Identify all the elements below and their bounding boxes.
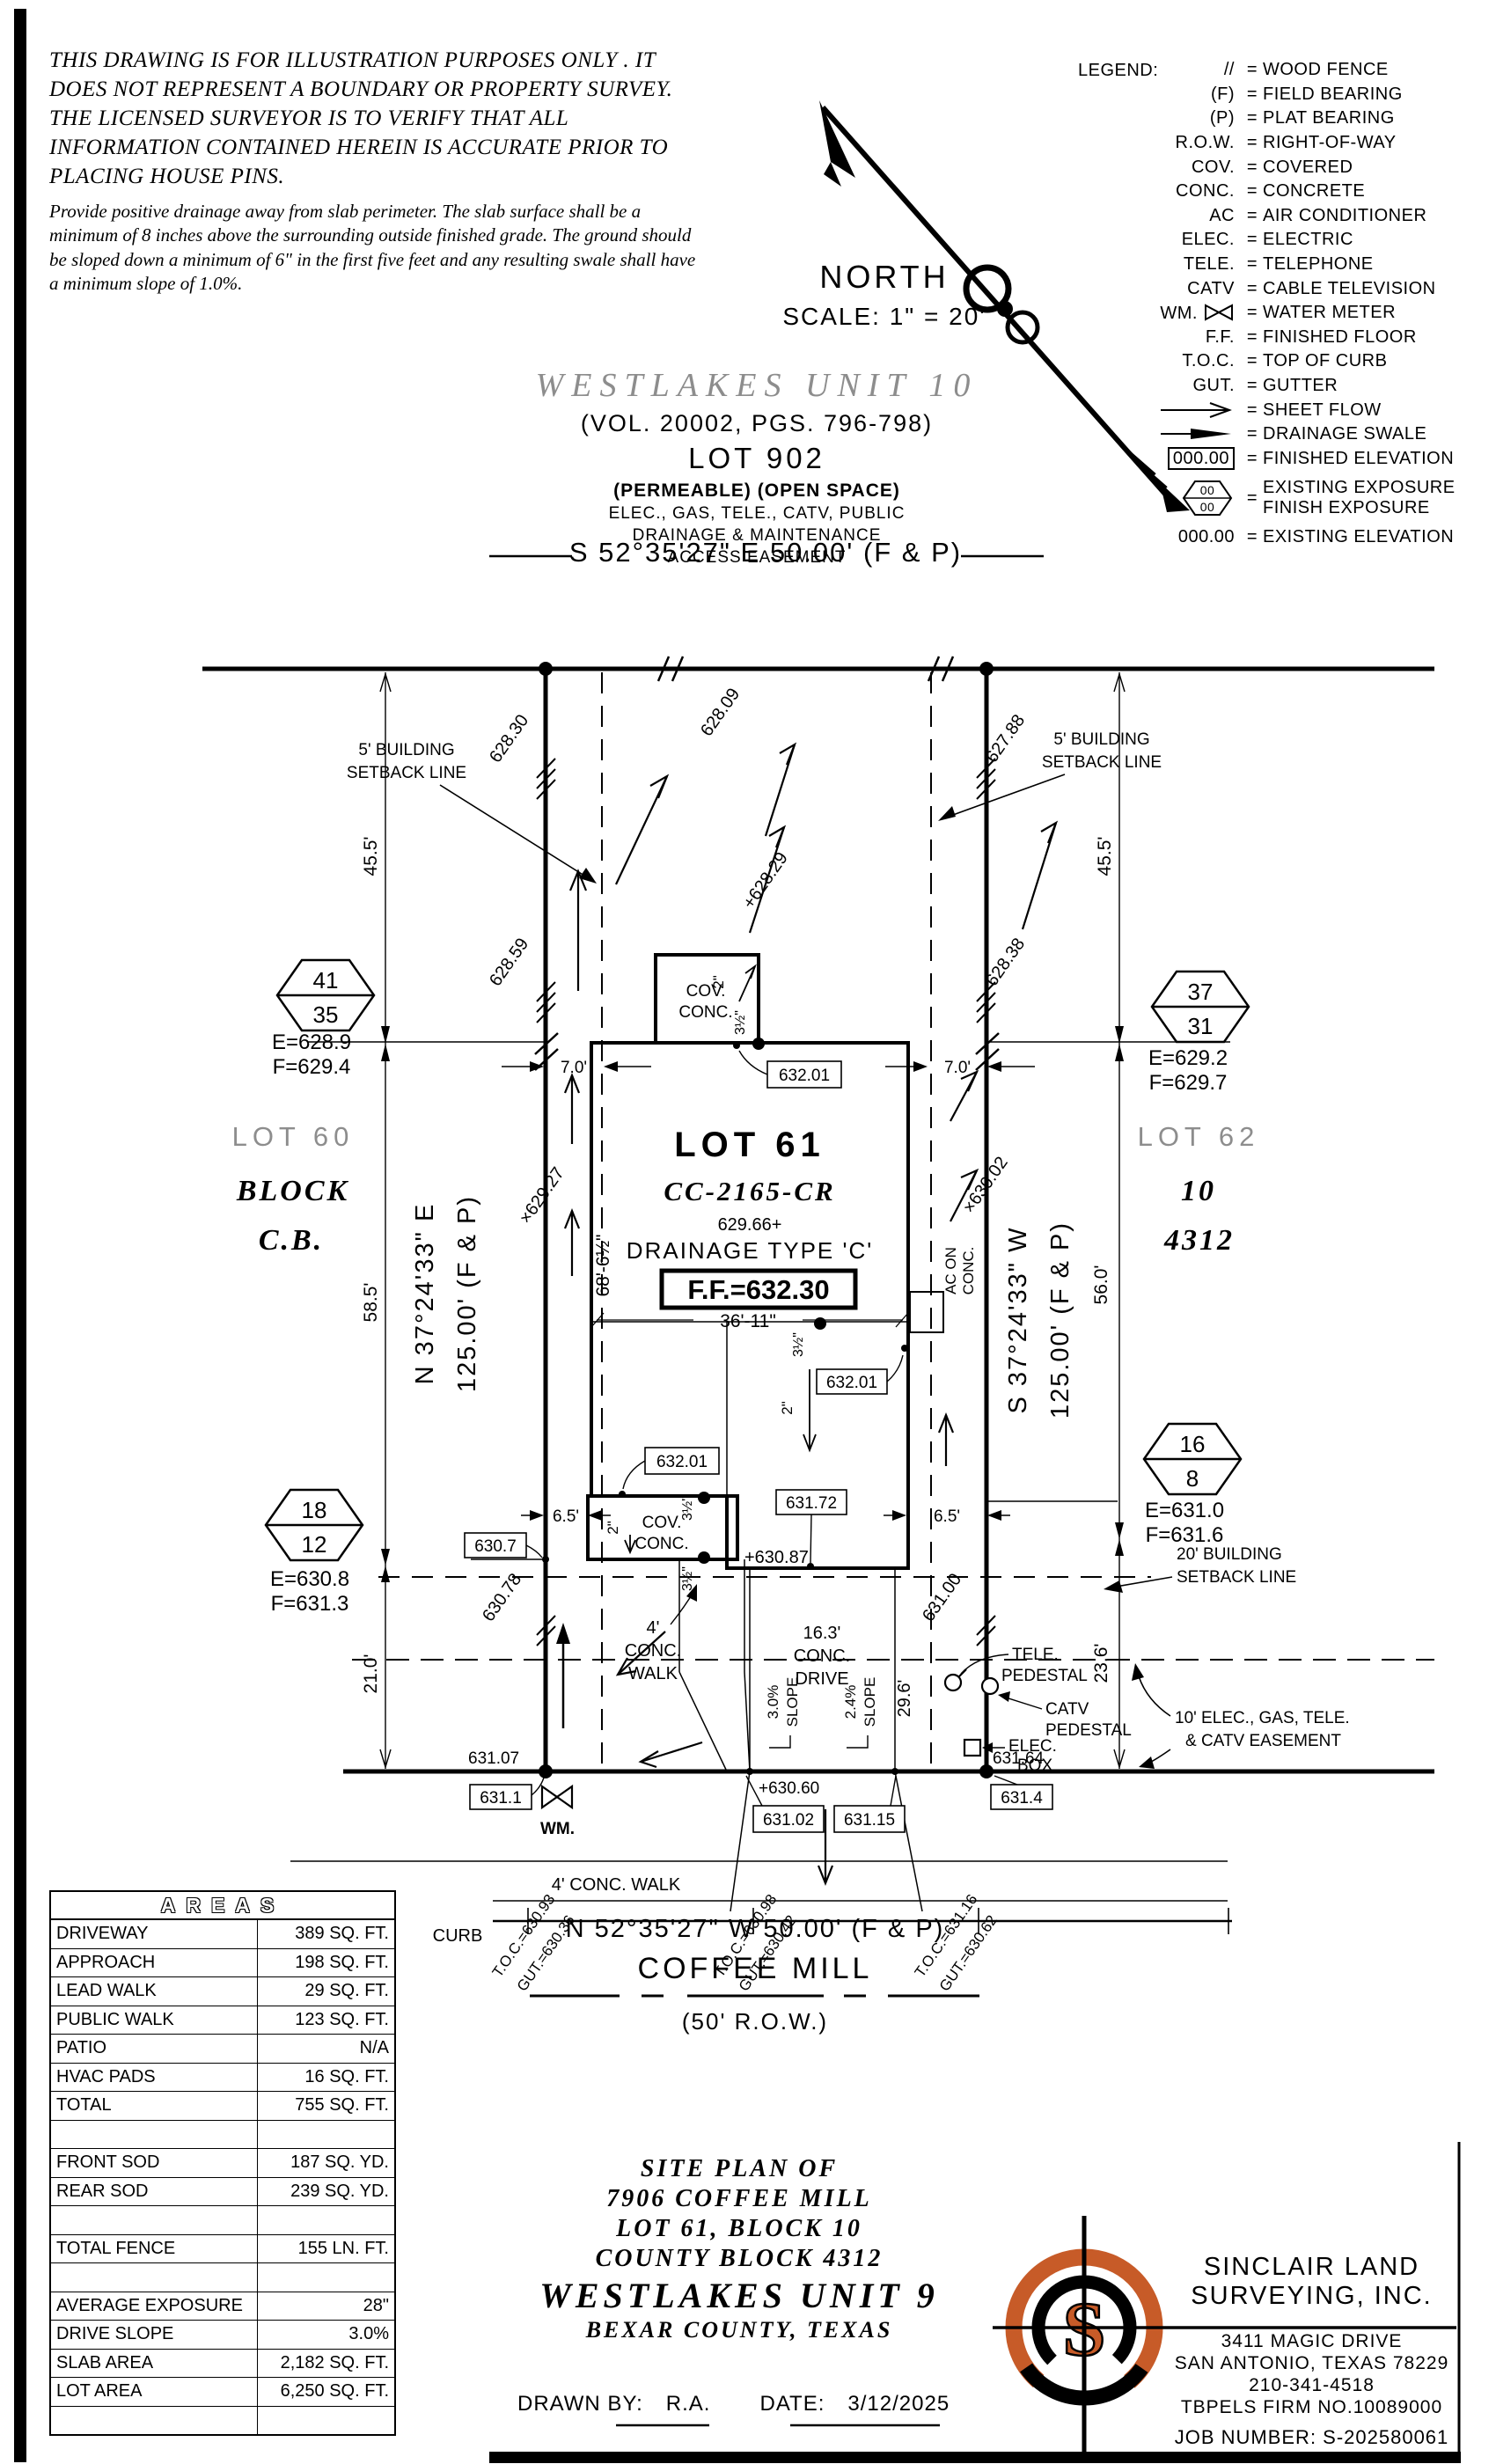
drawn-by-label: DRAWN BY: — [517, 2392, 643, 2416]
elev-632-01-left: 632.01 — [656, 1453, 708, 1471]
job-number: JOB NUMBER: S-202580061 — [1160, 2426, 1463, 2449]
row-value: 198 SQ. FT. — [258, 1949, 394, 1977]
elev-632-01-mid: 632.01 — [826, 1374, 877, 1392]
finished-floor-value: F.F.=632.30 — [687, 1274, 829, 1305]
setback-right-leader — [938, 774, 1065, 821]
table-row: PATION/A — [51, 2035, 394, 2064]
equals: = — [1242, 488, 1263, 509]
row-label: LOT AREA — [51, 2378, 258, 2406]
exposure-bot-num: 00 — [1200, 500, 1215, 514]
row-value: 155 LN. FT. — [258, 2235, 394, 2263]
row-value: 2,182 SQ. FT. — [258, 2350, 394, 2378]
row-label: TOTAL — [51, 2092, 258, 2120]
legend-row: TELE.=TELEPHONE — [1078, 253, 1474, 277]
spot-628-38: 628.38 — [982, 935, 1029, 990]
legend: LEGEND: // = WOOD FENCE (F)=FIELD BEARIN… — [1078, 58, 1474, 550]
legend-label: GUTTER — [1263, 376, 1338, 396]
finished-floor-box: F.F.=632.30 — [662, 1271, 855, 1308]
row-label: APPROACH — [51, 1949, 258, 1977]
title-line-2: 7906 COFFEE MILL — [493, 2184, 986, 2214]
tele-pedestal-icon — [945, 1669, 966, 1690]
three-half-2: 3½" — [791, 1332, 806, 1357]
legend-label: DRAINAGE SWALE — [1263, 424, 1426, 444]
sheet-flow-arrows — [565, 744, 1056, 1883]
elev-box-632-01-top: 632.01 — [733, 1042, 841, 1088]
exposure-sw-bot: 12 — [302, 1531, 327, 1558]
lead-walk-l1: 4' — [647, 1618, 660, 1638]
exposure-nw-e: E=628.9 — [272, 1030, 351, 1054]
spot-631-07: 631.07 — [468, 1749, 519, 1768]
legend-label: COVERED — [1263, 158, 1353, 178]
setback-right-l2: SETBACK LINE — [1042, 753, 1162, 772]
ff-abbrev: F.F. — [1078, 327, 1242, 348]
row-label: PATIO — [51, 2035, 258, 2063]
legend-row: (P)=PLAT BEARING — [1078, 106, 1474, 131]
two-inch-top: 2" — [710, 975, 727, 989]
easement-leaders — [1132, 1663, 1170, 1769]
setback-left-l2: SETBACK LINE — [347, 764, 466, 782]
equals: = — [1242, 181, 1263, 202]
table-row — [51, 2206, 394, 2235]
exposure-nw-top: 41 — [313, 967, 339, 994]
legend-row: CATV=CABLE TELEVISION — [1078, 276, 1474, 301]
legend-label: SHEET FLOW — [1263, 400, 1382, 421]
catv-pedestal-icon — [982, 1678, 998, 1694]
elev-630-7: 630.7 — [474, 1537, 517, 1556]
water-meter-icon — [542, 1786, 572, 1808]
north-label: NORTH — [739, 259, 1030, 296]
spot-631-64: 631.64 — [993, 1749, 1045, 1768]
exposure-se-bot: 8 — [1186, 1465, 1199, 1492]
elev-box-630-7: 630.7 — [465, 1533, 549, 1563]
legend-label: ELECTRIC — [1263, 230, 1353, 250]
spot-628-29: +628.29 — [739, 849, 792, 913]
water-meter-symbol: WM. — [1078, 303, 1242, 324]
finished-elevation-symbol: 000.00 — [1078, 447, 1242, 470]
equals: = — [1242, 279, 1263, 299]
row-value — [258, 2206, 394, 2234]
legend-label: RIGHT-OF-WAY — [1263, 133, 1397, 153]
row-label: DRIVEWAY — [51, 1920, 258, 1948]
legend-label: WOOD FENCE — [1263, 60, 1389, 80]
toc-abbrev: T.O.C. — [1078, 351, 1242, 371]
equals: = — [1242, 84, 1263, 105]
adjacent-cb: C.B. — [259, 1224, 324, 1257]
slope-2b: SLOPE — [862, 1677, 878, 1727]
elev-631-72: 631.72 — [786, 1494, 837, 1513]
legend-row: 000.00 =FINISHED ELEVATION — [1078, 447, 1474, 472]
ac-on-conc-1: AC ON — [942, 1247, 959, 1294]
exposure-sw-e: E=630.8 — [270, 1567, 349, 1591]
spot-628-30: 628.30 — [486, 711, 532, 766]
two-inch-porch: 2" — [605, 1521, 621, 1535]
legend-label: FINISHED FLOOR — [1263, 327, 1417, 348]
dim-23-6: 23.6' — [1091, 1644, 1111, 1683]
gut-abbrev: GUT. — [1078, 376, 1242, 396]
drawn-by-row: DRAWN BY: R.A. DATE: 3/12/2025 — [517, 2392, 993, 2416]
dim-58-5: 58.5' — [361, 1283, 381, 1323]
catv-leader — [998, 1691, 1042, 1709]
legend-title: LEGEND: — [1078, 61, 1158, 81]
front-setback-leader — [1104, 1577, 1172, 1593]
legend-label: PLAT BEARING — [1263, 108, 1395, 128]
water-meter-label: WM. — [540, 1820, 575, 1838]
tele-abbrev: TELE. — [1078, 254, 1242, 275]
exposure-nw-bot: 35 — [313, 1001, 339, 1028]
row-value — [258, 2121, 394, 2149]
legend-label: AIR CONDITIONER — [1263, 206, 1426, 226]
table-row: LOT AREA6,250 SQ. FT. — [51, 2378, 394, 2407]
elev-631-1: 631.1 — [480, 1789, 522, 1808]
lead-walk-l3: WALK — [628, 1664, 678, 1683]
front-setback-l2: SETBACK LINE — [1177, 1568, 1296, 1587]
row-label: TOTAL FENCE — [51, 2235, 258, 2263]
cov-conc-porch-2: CONC. — [634, 1535, 688, 1553]
dim-68-6: 68'-6½" — [593, 1234, 613, 1296]
row-value: 755 SQ. FT. — [258, 2092, 394, 2120]
exposure-se-f: F=631.6 — [1146, 1523, 1224, 1547]
row-value: N/A — [258, 2035, 394, 2063]
lot-boundary — [202, 662, 1434, 1778]
east-distance: 125.00' (F & P) — [1046, 1221, 1074, 1419]
legend-row: (F)=FIELD BEARING — [1078, 83, 1474, 107]
table-row: REAR SOD239 SQ. YD. — [51, 2178, 394, 2207]
legend-row: =DRAINAGE SWALE — [1078, 422, 1474, 447]
title-line-1: SITE PLAN OF — [493, 2154, 986, 2184]
setback-left-leader — [440, 785, 597, 884]
row-value: 3.0% — [258, 2321, 394, 2349]
title-line-4: COUNTY BLOCK 4312 — [493, 2244, 986, 2274]
subdivision-name: WESTLAKES UNIT 10 — [449, 366, 1065, 405]
front-setback-l1: 20' BUILDING — [1177, 1545, 1282, 1564]
street-row: (50' R.O.W.) — [315, 2008, 1195, 2035]
elev-631-15: 631.15 — [844, 1811, 895, 1830]
company-address-1: 3411 MAGIC DRIVE — [1160, 2330, 1463, 2352]
legend-label: TOP OF CURB — [1263, 351, 1387, 371]
legend-label: CONCRETE — [1263, 181, 1365, 202]
drainage-swale-arrow — [556, 1623, 570, 1728]
adjacent-block-left: BLOCK — [236, 1175, 349, 1207]
table-row: HVAC PADS16 SQ. FT. — [51, 2064, 394, 2093]
catv-abbrev: CATV — [1078, 279, 1242, 299]
company-phone: 210-341-4518 — [1160, 2374, 1463, 2396]
equals: = — [1242, 133, 1263, 153]
equals: = — [1242, 376, 1263, 396]
legend-row: ELEC.=ELECTRIC — [1078, 228, 1474, 253]
plat-bearing-symbol: (P) — [1078, 108, 1242, 128]
drive-l3: DRIVE — [795, 1669, 848, 1689]
slope-1b: SLOPE — [784, 1677, 801, 1727]
easement-line-1: ELEC., GAS, TELE., CATV, PUBLIC — [449, 504, 1065, 524]
three-half-4: 3½" — [680, 1566, 695, 1591]
west-distance: 125.00' (F & P) — [453, 1195, 481, 1392]
west-bearing: N 37°24'33" E — [411, 1203, 439, 1385]
row-value: 28" — [258, 2292, 394, 2321]
table-row: PUBLIC WALK123 SQ. FT. — [51, 2006, 394, 2035]
slope-2a: 2.4% — [842, 1685, 859, 1720]
disclaimer-paragraph-1: THIS DRAWING IS FOR ILLUSTRATION PURPOSE… — [49, 46, 700, 191]
legend-row: R.O.W.=RIGHT-OF-WAY — [1078, 131, 1474, 156]
ac-on-conc-2: CONC. — [960, 1247, 977, 1295]
south-boundary-bearing: N 52°35'27" W 50.00' (F & P) — [315, 1915, 1195, 1944]
exposure-se-e: E=631.0 — [1145, 1499, 1224, 1522]
title-block: SITE PLAN OF 7906 COFFEE MILL LOT 61, BL… — [493, 2154, 986, 2344]
areas-table: AREAS DRIVEWAY389 SQ. FT. APPROACH198 SQ… — [49, 1890, 396, 2436]
exposure-sw-f: F=631.3 — [271, 1592, 349, 1616]
house-drainage-type: DRAINAGE TYPE 'C' — [627, 1237, 873, 1264]
dim-21-0: 21.0' — [361, 1654, 381, 1694]
row-label — [51, 2206, 258, 2234]
elev-box-631-1: 631.1 — [470, 1778, 544, 1809]
tele-pedestal-l2: PEDESTAL — [1001, 1667, 1088, 1685]
legend-row: LEGEND: // = WOOD FENCE — [1078, 58, 1474, 83]
row-label: DRIVE SLOPE — [51, 2321, 258, 2349]
row-value: 29 SQ. FT. — [258, 1977, 394, 2006]
exposure-se-top: 16 — [1180, 1431, 1206, 1457]
spot-628-09: 628.09 — [697, 685, 744, 740]
equals: = — [1242, 527, 1263, 547]
spot-628-59: 628.59 — [486, 935, 532, 990]
drive-l2: CONC. — [794, 1646, 850, 1666]
row-value: 239 SQ. YD. — [258, 2178, 394, 2206]
table-row: TOTAL FENCE155 LN. FT. — [51, 2235, 394, 2264]
legend-row: T.O.C.=TOP OF CURB — [1078, 349, 1474, 374]
lead-walk-l2: CONC. — [625, 1641, 681, 1661]
public-walk-label: 4' CONC. WALK — [552, 1875, 681, 1895]
equals: = — [1242, 60, 1263, 80]
equals: = — [1242, 254, 1263, 275]
disclaimer-note: THIS DRAWING IS FOR ILLUSTRATION PURPOSE… — [49, 46, 700, 296]
row-label: PUBLIC WALK — [51, 2006, 258, 2035]
exposure-ne-f: F=629.7 — [1149, 1071, 1228, 1095]
date-label: DATE: — [759, 2392, 825, 2416]
table-row: AVERAGE EXPOSURE28" — [51, 2292, 394, 2321]
row-value — [258, 2263, 394, 2292]
company-name-1: SINCLAIR LAND — [1160, 2253, 1463, 2282]
drainage-swale-icon — [1159, 425, 1235, 443]
row-value: 123 SQ. FT. — [258, 2006, 394, 2035]
title-subdivision: WESTLAKES UNIT 9 — [493, 2276, 986, 2316]
legend-label: EXISTING EXPOSURE FINISH EXPOSURE — [1263, 478, 1456, 518]
table-row: FRONT SOD187 SQ. YD. — [51, 2149, 394, 2178]
elec-box-icon — [964, 1740, 980, 1756]
exposure-sw-top: 18 — [302, 1497, 327, 1523]
table-row: LEAD WALK29 SQ. FT. — [51, 1977, 394, 2006]
site-plan-sheet: { "colors": { "accent": "#C75B28", "mute… — [0, 0, 1496, 2464]
legend-label: FINISHED ELEVATION — [1263, 449, 1454, 469]
elev-631-02: 631.02 — [763, 1811, 814, 1830]
table-row — [51, 2407, 394, 2435]
dim-29-6: 29.6' — [895, 1680, 914, 1718]
scale-label: SCALE: 1" = 20' — [739, 303, 1030, 331]
legend-row: 00 00 = EXISTING EXPOSURE FINISH EXPOSUR… — [1078, 471, 1474, 525]
setback-left-l1: 5' BUILDING — [358, 741, 454, 759]
elec-abbrev: ELEC. — [1078, 230, 1242, 250]
legend-label: TELEPHONE — [1263, 254, 1374, 275]
legend-label: FIELD BEARING — [1263, 84, 1403, 105]
spot-630-60: +630.60 — [759, 1779, 819, 1798]
table-row — [51, 2263, 394, 2292]
elev-631-4: 631.4 — [1001, 1789, 1043, 1808]
cov-abbrev: COV. — [1078, 158, 1242, 178]
equals: = — [1242, 108, 1263, 128]
house-pad-elev: 629.66+ — [718, 1215, 782, 1235]
elev-632-01-top: 632.01 — [779, 1067, 830, 1085]
slope-1a: 3.0% — [765, 1685, 781, 1720]
legend-label: EXISTING ELEVATION — [1263, 527, 1454, 547]
dim-56-0: 56.0' — [1091, 1265, 1111, 1305]
spot-627-88: 627.88 — [982, 711, 1029, 766]
legend-label: WATER METER — [1263, 303, 1396, 323]
date-value: 3/12/2025 — [833, 2392, 964, 2416]
public-walk — [290, 1861, 1228, 1901]
finish-exposure-label: FINISH EXPOSURE — [1263, 498, 1430, 517]
sheet-flow-symbol — [1078, 400, 1242, 421]
legend-row: GUT.=GUTTER — [1078, 374, 1474, 399]
catv-pedestal-l1: CATV — [1045, 1700, 1089, 1719]
elev-box-631-15: 631.15 — [834, 1776, 905, 1832]
legend-row: WM. =WATER METER — [1078, 301, 1474, 326]
dim-65-right-label: 6.5' — [934, 1507, 960, 1526]
company-block: SINCLAIR LAND SURVEYING, INC. 3411 MAGIC… — [1160, 2253, 1463, 2449]
north-scale-block: NORTH SCALE: 1" = 20' — [739, 259, 1030, 331]
row-label — [51, 2263, 258, 2292]
legend-row: COV.=COVERED — [1078, 155, 1474, 180]
existing-exposure-label: EXISTING EXPOSURE — [1263, 478, 1456, 497]
row-label: LEAD WALK — [51, 1977, 258, 2006]
exposure-nw-f: F=629.4 — [273, 1055, 351, 1079]
elev-box-631-4: 631.4 — [991, 1776, 1052, 1809]
title-county: BEXAR COUNTY, TEXAS — [493, 2316, 986, 2344]
table-row: DRIVEWAY389 SQ. FT. — [51, 1920, 394, 1949]
dim-7-right-label: 7.0' — [944, 1059, 971, 1077]
row-value: 16 SQ. FT. — [258, 2064, 394, 2092]
sheet-flow-icon — [1159, 401, 1235, 419]
two-inch-mid: 2" — [779, 1401, 796, 1415]
table-row: SLAB AREA2,182 SQ. FT. — [51, 2350, 394, 2379]
easement-l1: 10' ELEC., GAS, TELE. — [1175, 1709, 1350, 1727]
drive-l1: 16.3' — [803, 1624, 841, 1643]
table-row: TOTAL755 SQ. FT. — [51, 2092, 394, 2121]
water-meter-icon — [1203, 303, 1235, 322]
adjacent-lot-62: LOT 62 — [1138, 1121, 1260, 1152]
house-lot-61: LOT 61 — [674, 1126, 825, 1164]
three-half-3: 3½" — [680, 1496, 695, 1521]
spot-630-78: 630.78 — [479, 1570, 525, 1625]
dim-45-5-right: 45.5' — [1095, 837, 1115, 876]
elev-box-632-01-mid: 632.01 — [817, 1345, 908, 1394]
easement-l2: & CATV EASEMENT — [1185, 1732, 1341, 1750]
row-label — [51, 2407, 258, 2435]
drainage-swale-symbol — [1078, 424, 1242, 444]
north-boundary-bearing: S 52°35'27" E 50.00' (F & P) — [326, 537, 1206, 568]
field-bearing-symbol: (F) — [1078, 84, 1242, 105]
adjacent-4312: 4312 — [1163, 1224, 1235, 1257]
row-label — [51, 2121, 258, 2149]
adjacent-block-10: 10 — [1181, 1175, 1216, 1207]
row-label: AVERAGE EXPOSURE — [51, 2292, 258, 2321]
equals: = — [1242, 158, 1263, 178]
exposure-hexagon-icon: 00 00 — [1180, 477, 1235, 519]
equals: = — [1242, 230, 1263, 250]
row-label: HVAC PADS — [51, 2064, 258, 2092]
slope-symbols — [769, 1735, 868, 1748]
equals: = — [1242, 303, 1263, 323]
plat-volume: (VOL. 20002, PGS. 796-798) — [449, 410, 1065, 437]
setback-right-l1: 5' BUILDING — [1053, 730, 1149, 749]
conc-abbrev: CONC. — [1078, 181, 1242, 202]
equals: = — [1242, 206, 1263, 226]
row-label: FRONT SOD — [51, 2149, 258, 2177]
equals: = — [1242, 351, 1263, 371]
equals: = — [1242, 400, 1263, 421]
row-abbrev: R.O.W. — [1078, 133, 1242, 153]
elev-box-632-01-left: 632.01 — [619, 1448, 719, 1498]
company-address-2: SAN ANTONIO, TEXAS 78229 — [1160, 2352, 1463, 2374]
row-value: 389 SQ. FT. — [258, 1920, 394, 1948]
equals: = — [1242, 327, 1263, 348]
lot-902: LOT 902 — [449, 442, 1065, 475]
setback-lines — [352, 672, 1434, 1767]
cov-conc-top-2: CONC. — [678, 1003, 732, 1022]
row-label: SLAB AREA — [51, 2350, 258, 2378]
street-name: COFFEE MILL — [315, 1952, 1195, 1986]
catv-pedestal-l2: PEDESTAL — [1045, 1721, 1132, 1740]
exposure-ne-top: 37 — [1188, 979, 1214, 1005]
finished-elevation-box: 000.00 — [1168, 447, 1235, 470]
dim-7-left-label: 7.0' — [561, 1059, 587, 1077]
company-name-2: SURVEYING, INC. — [1160, 2282, 1463, 2311]
title-line-3: LOT 61, BLOCK 10 — [493, 2214, 986, 2244]
legend-row: AC=AIR CONDITIONER — [1078, 204, 1474, 229]
row-label: REAR SOD — [51, 2178, 258, 2206]
table-row: DRIVE SLOPE3.0% — [51, 2321, 394, 2350]
company-firm-no: TBPELS FIRM NO.10089000 — [1160, 2396, 1463, 2418]
exposure-top-num: 00 — [1200, 483, 1215, 497]
equals: = — [1242, 449, 1263, 469]
ac-abbrev: AC — [1078, 206, 1242, 226]
drawn-by-value: R.A. — [652, 2392, 725, 2416]
spot-630-87: +630.87 — [744, 1548, 809, 1567]
lot-902-use: (PERMEABLE) (OPEN SPACE) — [449, 480, 1065, 502]
spot-629-27: ×629.27 — [516, 1164, 568, 1228]
row-value: 6,250 SQ. FT. — [258, 2378, 394, 2406]
cov-conc-porch-1: COV. — [642, 1514, 682, 1532]
equals: = — [1242, 424, 1263, 444]
wm-abbrev: WM. — [1160, 304, 1198, 323]
table-row — [51, 2121, 394, 2150]
legend-row: =SHEET FLOW — [1078, 398, 1474, 422]
house-model: CC-2165-CR — [664, 1176, 835, 1206]
east-bearing: S 37°24'33" W — [1004, 1226, 1032, 1413]
spot-631-00: 631.00 — [919, 1570, 965, 1625]
legend-row: CONC.=CONCRETE — [1078, 180, 1474, 204]
areas-table-title: AREAS — [51, 1892, 394, 1920]
legend-row: F.F.=FINISHED FLOOR — [1078, 326, 1474, 350]
dim-45-5-left: 45.5' — [361, 837, 381, 876]
dim-36-11: 36'-11" — [720, 1311, 776, 1331]
row-value: 187 SQ. YD. — [258, 2149, 394, 2177]
row-value — [258, 2407, 394, 2435]
exposure-symbol: 00 00 — [1078, 477, 1242, 519]
adjacent-lot-60: LOT 60 — [232, 1121, 355, 1152]
dim-65-left-label: 6.5' — [553, 1507, 579, 1526]
legend-label: CABLE TELEVISION — [1263, 279, 1436, 299]
table-row: APPROACH198 SQ. FT. — [51, 1949, 394, 1978]
tele-pedestal-l1: TELE. — [1012, 1646, 1059, 1664]
disclaimer-paragraph-2: Provide positive drainage away from slab… — [49, 200, 700, 296]
exposure-ne-bot: 31 — [1188, 1013, 1214, 1039]
